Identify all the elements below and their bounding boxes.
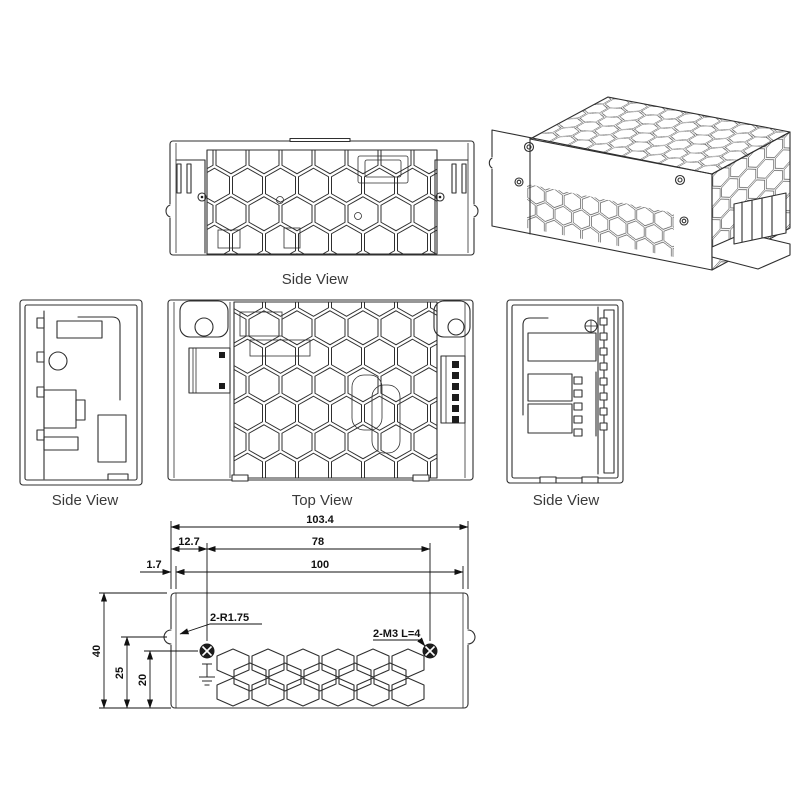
mechanical-drawing-page: Side View bbox=[0, 0, 800, 800]
dim-hole-offset: 12.7 bbox=[178, 536, 199, 548]
bottom-view-drawing: 103.4 12.7 78 1.7 100 40 25 20 2-R1.75 2… bbox=[91, 514, 475, 708]
isometric-view-drawing bbox=[489, 97, 790, 270]
note-corner-radius: 2-R1.75 bbox=[210, 612, 249, 624]
vent-grille bbox=[207, 150, 437, 254]
dim-hole-spacing: 78 bbox=[312, 536, 324, 548]
dim-flange-inset: 1.7 bbox=[146, 559, 161, 571]
note-screw: 2-M3 L=4 bbox=[373, 628, 421, 640]
top-view-drawing: Top View bbox=[168, 300, 473, 509]
side-view-top-drawing: Side View bbox=[166, 139, 478, 289]
mechanical-drawing-canvas: Side View bbox=[0, 0, 800, 800]
side-view-left-drawing: Side View bbox=[20, 300, 142, 509]
pin bbox=[177, 164, 181, 193]
chassis-screw bbox=[585, 320, 597, 332]
pin bbox=[187, 164, 191, 193]
dim-hole-height: 20 bbox=[137, 674, 149, 686]
pin bbox=[462, 164, 466, 193]
side-view-left-label: Side View bbox=[52, 492, 119, 509]
side-view-right-label: Side View bbox=[533, 492, 600, 509]
side-view-right-drawing: Side View bbox=[507, 300, 623, 509]
dim-overall-height: 40 bbox=[91, 645, 103, 657]
top-view-label: Top View bbox=[292, 492, 353, 509]
vent-grille bbox=[234, 302, 437, 478]
side-view-top-label: Side View bbox=[282, 271, 349, 288]
terminal-block bbox=[441, 356, 465, 423]
dim-notch-height: 25 bbox=[114, 667, 126, 679]
screw-hole-left bbox=[200, 644, 215, 659]
pin bbox=[452, 164, 456, 193]
dim-overall-length: 103.4 bbox=[306, 514, 334, 526]
dim-body-length: 100 bbox=[311, 559, 329, 571]
